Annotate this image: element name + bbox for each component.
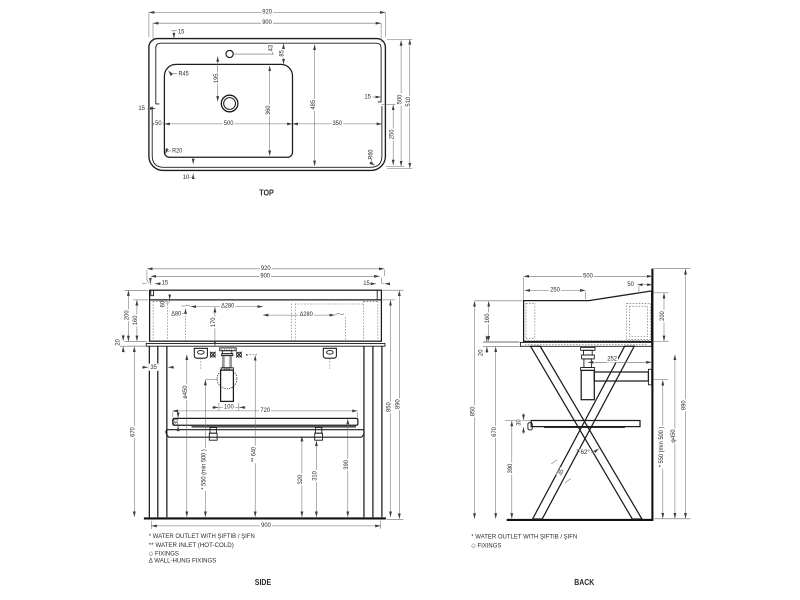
svg-text:350: 350 (332, 120, 342, 127)
svg-text:* 550 (min 500 ): * 550 (min 500 ) (201, 449, 208, 490)
svg-text:390: 390 (507, 463, 514, 473)
svg-text:900: 900 (260, 272, 270, 279)
svg-text:720: 720 (260, 407, 270, 414)
svg-text:890: 890 (681, 400, 688, 410)
svg-text:30: 30 (174, 418, 180, 424)
svg-text:850: 850 (386, 402, 393, 412)
svg-text:50: 50 (155, 120, 162, 127)
svg-text:920: 920 (261, 265, 271, 272)
svg-text:485: 485 (310, 100, 317, 110)
svg-text:Δ280: Δ280 (221, 303, 234, 310)
svg-text:30: 30 (515, 419, 522, 426)
svg-text:200: 200 (124, 310, 131, 320)
svg-text:Δ280: Δ280 (300, 311, 313, 318)
svg-text:360: 360 (265, 105, 272, 115)
svg-text:43: 43 (268, 45, 275, 52)
svg-text:15: 15 (138, 105, 145, 112)
svg-text:160: 160 (484, 313, 491, 323)
svg-text:250: 250 (550, 286, 560, 293)
svg-text:R60: R60 (368, 149, 375, 159)
svg-text:200: 200 (659, 311, 666, 321)
svg-text:15: 15 (178, 29, 185, 36)
svg-text:* WATER OUTLET WITH ŞIFTIB /: * WATER OUTLET WITH ŞIFTIB / ŞIFN (149, 533, 255, 540)
svg-text:** 640: ** 640 (250, 447, 257, 462)
svg-text:* WATER OUTLET WITH ŞIFTIB /: * WATER OUTLET WITH ŞIFTIB / ŞIFN (471, 533, 577, 540)
svg-text:50: 50 (627, 281, 634, 288)
svg-text:φ450: φ450 (670, 429, 677, 443)
svg-text:500: 500 (396, 94, 403, 104)
svg-text:R20: R20 (172, 147, 182, 154)
svg-text:TOP: TOP (259, 188, 274, 198)
svg-text:Δ WALL-HUNG FIXINGS: Δ WALL-HUNG FIXINGS (149, 558, 217, 565)
svg-text:195: 195 (213, 73, 220, 83)
svg-text:900: 900 (261, 522, 271, 529)
svg-text:** WATER INLET (HOT-COLD): ** WATER INLET (HOT-COLD) (149, 542, 234, 549)
svg-text:60: 60 (160, 301, 167, 308)
svg-text:850: 850 (470, 406, 477, 416)
svg-text:170: 170 (210, 317, 217, 327)
svg-text:Δ80: Δ80 (171, 311, 181, 318)
svg-text:* 550 (min 500 ): * 550 (min 500 ) (658, 427, 665, 468)
svg-text:◇ FIXINGS: ◇ FIXINGS (471, 542, 502, 549)
svg-text:20: 20 (114, 339, 121, 346)
svg-text:62°: 62° (580, 448, 590, 456)
svg-text:BACK: BACK (574, 577, 594, 587)
svg-text:320: 320 (297, 475, 304, 485)
svg-text:R45: R45 (179, 71, 189, 78)
svg-text:◇ FIXINGS: ◇ FIXINGS (149, 550, 180, 557)
svg-text:85: 85 (279, 50, 286, 57)
svg-text:100: 100 (224, 403, 234, 410)
svg-text:20: 20 (477, 349, 484, 356)
svg-text:160: 160 (132, 315, 139, 325)
svg-text:35: 35 (150, 364, 157, 371)
svg-text:900: 900 (262, 19, 272, 26)
svg-text:310: 310 (312, 471, 319, 481)
svg-text:890: 890 (395, 399, 402, 409)
svg-text:670: 670 (130, 427, 137, 437)
svg-text:ø450: ø450 (182, 385, 189, 398)
svg-text:15: 15 (162, 280, 169, 287)
svg-text:390: 390 (343, 460, 350, 470)
svg-text:252: 252 (607, 356, 617, 363)
svg-text:500: 500 (224, 120, 234, 127)
svg-text:15: 15 (363, 280, 370, 287)
svg-text:670: 670 (491, 427, 498, 437)
svg-text:920: 920 (262, 8, 272, 15)
svg-text:250: 250 (388, 129, 395, 139)
svg-text:510: 510 (405, 97, 412, 107)
svg-text:SIDE: SIDE (255, 577, 272, 587)
svg-text:500: 500 (583, 272, 593, 279)
svg-text:15: 15 (364, 94, 371, 101)
svg-text:10: 10 (183, 174, 190, 181)
